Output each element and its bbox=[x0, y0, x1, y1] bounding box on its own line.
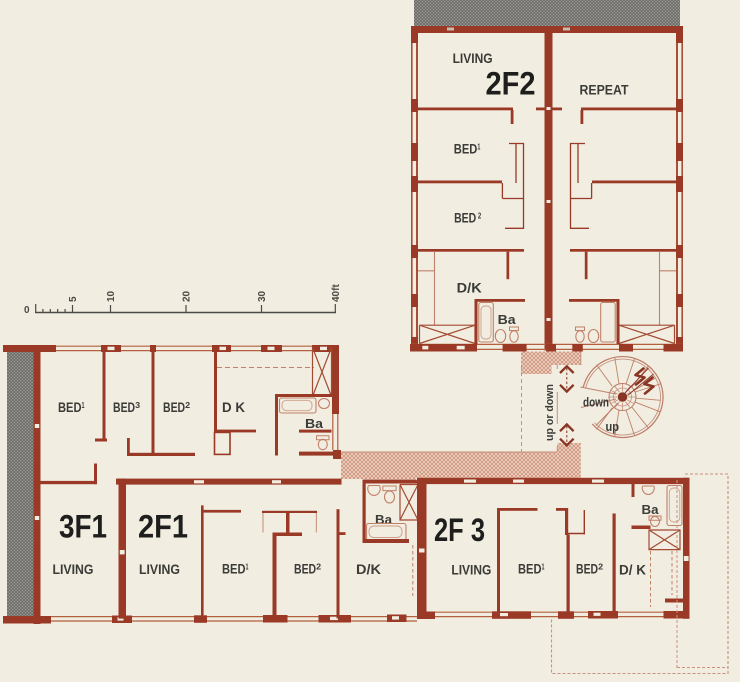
svg-text:D/K: D/K bbox=[457, 281, 482, 296]
svg-text:5: 5 bbox=[68, 296, 79, 302]
svg-text:Ba: Ba bbox=[498, 313, 517, 327]
svg-text:BED1: BED1 bbox=[454, 142, 481, 157]
svg-text:BED1: BED1 bbox=[222, 562, 249, 577]
svg-text:BED1: BED1 bbox=[518, 562, 545, 577]
svg-text:REPEAT: REPEAT bbox=[580, 83, 630, 98]
svg-text:LIVING: LIVING bbox=[53, 562, 94, 577]
svg-text:D K: D K bbox=[222, 400, 245, 415]
svg-text:40ft: 40ft bbox=[331, 284, 342, 302]
svg-text:LIVING: LIVING bbox=[139, 562, 180, 577]
svg-text:Ba: Ba bbox=[375, 513, 393, 527]
svg-text:LIVING: LIVING bbox=[451, 563, 491, 578]
svg-text:up: up bbox=[606, 419, 620, 434]
svg-text:Ba: Ba bbox=[305, 417, 324, 431]
svg-text:D/ K: D/ K bbox=[619, 563, 646, 578]
svg-text:up or down: up or down bbox=[544, 384, 556, 441]
svg-text:BED1: BED1 bbox=[58, 400, 85, 415]
svg-text:down: down bbox=[583, 395, 609, 410]
svg-text:30: 30 bbox=[257, 290, 268, 302]
svg-text:2F 3: 2F 3 bbox=[434, 512, 485, 548]
svg-text:3F1: 3F1 bbox=[59, 509, 107, 545]
svg-text:2F1: 2F1 bbox=[138, 509, 188, 545]
svg-text:D/K: D/K bbox=[356, 562, 381, 577]
svg-text:2F2: 2F2 bbox=[486, 66, 536, 102]
svg-text:20: 20 bbox=[182, 290, 193, 302]
svg-text:Ba: Ba bbox=[642, 503, 660, 517]
svg-text:10: 10 bbox=[106, 290, 117, 302]
svg-text:0: 0 bbox=[24, 305, 30, 316]
svg-text:LIVING: LIVING bbox=[453, 51, 493, 66]
